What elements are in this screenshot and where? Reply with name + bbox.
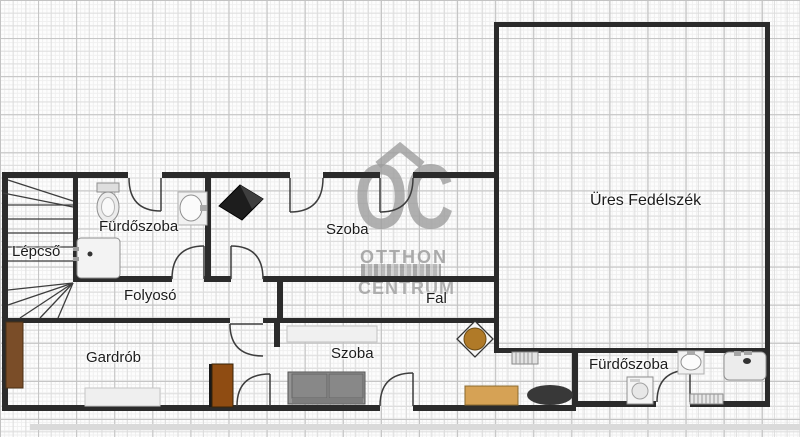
wall-attic-left bbox=[494, 22, 499, 353]
door-szoba-top-2 bbox=[380, 178, 413, 212]
toilet-icon bbox=[97, 183, 119, 222]
wall-bottom-left-1 bbox=[2, 405, 380, 411]
watermark-roof-icon bbox=[378, 147, 422, 165]
shower-top-icon bbox=[73, 238, 120, 278]
wall-hall-bottom-2 bbox=[263, 318, 494, 323]
sofa bbox=[288, 372, 365, 404]
gardrob-dresser bbox=[85, 388, 160, 406]
door-szoba-hall bbox=[231, 246, 263, 279]
room-label-lepcso: Lépcső bbox=[12, 244, 60, 261]
round-table bbox=[457, 321, 493, 357]
shower-bottom-icon bbox=[724, 351, 766, 380]
gardrob-cabinet-right bbox=[209, 364, 233, 407]
dark-oval-item bbox=[527, 385, 573, 405]
room-label-furdoszoba-bottom: Fürdőszoba bbox=[589, 357, 668, 374]
wall-top-1 bbox=[2, 172, 128, 178]
door-szoba-bottom bbox=[380, 373, 413, 406]
dark-tilted-item bbox=[219, 185, 263, 220]
tan-chest bbox=[465, 386, 518, 405]
wall-mid-3 bbox=[263, 276, 494, 282]
wall-hall-bottom-1 bbox=[2, 318, 230, 323]
wall-top-2 bbox=[162, 172, 290, 178]
sideboard bbox=[287, 326, 377, 342]
radiator-mid-icon bbox=[512, 352, 538, 364]
door-bathroom-top bbox=[129, 178, 161, 211]
room-label-szoba-bottom: Szoba bbox=[331, 346, 374, 363]
sink-top-icon bbox=[178, 192, 207, 225]
floorplan-canvas: OC OTTHON CENTRUM bbox=[0, 0, 800, 437]
furniture bbox=[6, 185, 573, 407]
room-label-szoba-top: Szoba bbox=[326, 222, 369, 239]
gardrob-cabinet-left bbox=[6, 322, 23, 388]
sink-bottom-icon bbox=[678, 351, 704, 374]
wall-attic-top bbox=[494, 22, 770, 27]
radiator-icon bbox=[690, 394, 723, 404]
wall-top-4 bbox=[413, 172, 499, 178]
wall-bottom-left-2 bbox=[413, 405, 576, 411]
door-hall-gardrob bbox=[230, 324, 263, 356]
room-label-furdoszoba-top: Fürdőszoba bbox=[99, 219, 178, 236]
door-szoba-top-1 bbox=[290, 178, 323, 212]
wall-folyoso-fal bbox=[277, 276, 283, 323]
wall-gardrob-szoba-stub bbox=[274, 321, 280, 347]
room-label-ures-fedelszek: Üres Fedélszék bbox=[590, 192, 701, 210]
door-bathroom-hall bbox=[172, 246, 204, 279]
wall-bath-szoba bbox=[205, 172, 211, 282]
room-label-gardrob: Gardrób bbox=[86, 350, 141, 367]
washing-machine-icon bbox=[627, 377, 653, 404]
door-bathroom-bottom bbox=[657, 370, 690, 402]
door-gardrob-szoba bbox=[237, 374, 270, 406]
room-label-folyoso: Folyosó bbox=[124, 288, 177, 305]
wall-szoba-bath2 bbox=[572, 348, 578, 407]
wall-top-3 bbox=[323, 172, 380, 178]
room-label-fal: Fal bbox=[426, 291, 447, 308]
